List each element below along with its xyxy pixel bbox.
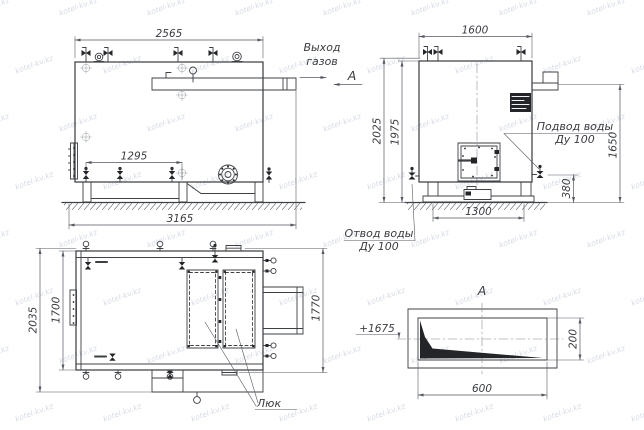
dim-text: 2035 <box>28 306 40 333</box>
support-legs-side <box>83 182 263 202</box>
flange-icon <box>232 52 242 61</box>
pump-flange-icon <box>219 165 238 184</box>
dim-380: 380 <box>548 175 578 203</box>
dim-text: 1770 <box>311 294 323 321</box>
bottom-drain-valves <box>83 167 272 183</box>
deposit-profile <box>420 321 543 359</box>
flue-duct-plan <box>263 287 303 334</box>
hinge-icon <box>495 150 500 154</box>
center-mark-icon <box>177 90 188 101</box>
dim-text: 1650 <box>608 131 620 158</box>
ash-door <box>464 187 491 200</box>
technical-drawing: 2565 <box>0 0 644 430</box>
water-outlet-label: Отвод воды <box>345 227 414 240</box>
hatch-callout: Люк <box>205 322 297 410</box>
drain-valve-icon <box>83 167 89 182</box>
section-a-view: А 200 600 +1675 <box>356 283 584 399</box>
bolt-icon <box>219 340 222 343</box>
dim-text: 3165 <box>167 213 194 225</box>
drain-valve-icon <box>266 167 272 182</box>
water-inlet-label: Подвод воды <box>537 120 614 133</box>
water-outlet-valve-icon <box>409 167 420 180</box>
water-inlet-callout: Подвод воды Ду 100 <box>504 120 614 169</box>
dim-text: 2025 <box>372 117 384 144</box>
ground-hatching <box>64 203 302 210</box>
gas-outlet-label: газов <box>306 55 338 68</box>
ground-line <box>62 203 305 211</box>
plan-right-fittings <box>263 258 276 359</box>
dim-1975: 1975 <box>390 61 420 203</box>
pipe-fitting-icon <box>166 73 171 79</box>
hatch-cover <box>223 270 255 348</box>
bolt-icon <box>219 298 222 301</box>
drain-valve-icon <box>169 167 175 182</box>
bolt-icon <box>219 276 222 279</box>
boiler-body-plan <box>76 251 263 370</box>
flue-duct-side <box>152 67 296 90</box>
top-safety-valves <box>82 48 243 63</box>
safety-valve-icon <box>104 48 113 63</box>
hatch-label: Люк <box>256 397 282 410</box>
dim-text: 2565 <box>156 28 183 40</box>
front-view: 1600 <box>344 25 624 254</box>
burner-flange <box>69 143 78 179</box>
dim-text: 1600 <box>462 25 489 37</box>
boiler-body-front <box>419 61 532 182</box>
level-mark-label: +1675 <box>359 323 395 335</box>
water-inlet-valve-icon <box>532 165 544 178</box>
gas-outlet-label: Выход <box>303 41 340 54</box>
dim-text: 1300 <box>465 206 492 218</box>
flange-icon <box>94 53 104 61</box>
safety-valve-icon <box>423 47 432 62</box>
dim-text: 1295 <box>121 151 148 163</box>
dim-1295: 1295 <box>86 151 182 181</box>
level-mark-callout: +1675 <box>356 323 399 338</box>
water-outlet-callout: Отвод воды Ду 100 <box>344 184 415 253</box>
plan-inner-fittings <box>85 244 218 361</box>
dim-text: 1700 <box>51 296 63 323</box>
dim-1770: 1770 <box>239 249 327 373</box>
front-extension-plan <box>152 370 263 403</box>
furnace-door <box>458 143 500 181</box>
plan-top-fittings <box>83 241 241 251</box>
side-view: 2565 <box>62 28 362 229</box>
plan-view: Люк 2035 1700 1770 <box>28 241 328 410</box>
dim-text: 600 <box>472 383 492 395</box>
dim-1700: 1700 <box>51 251 77 370</box>
boiler-body-side <box>75 62 263 182</box>
water-outlet-label: Ду 100 <box>358 240 399 253</box>
safety-valve-icon <box>434 47 443 62</box>
center-mark-icon <box>81 132 92 143</box>
nameplate <box>510 93 531 112</box>
section-mark-label: А <box>347 68 357 83</box>
bolt-icon <box>219 320 222 323</box>
center-mark-icon <box>177 63 188 74</box>
center-mark-icon <box>81 63 92 74</box>
section-title: А <box>477 283 487 298</box>
safety-valve-icon <box>82 48 91 63</box>
safety-valve-icon <box>517 47 526 62</box>
thermometer-icon <box>190 67 197 82</box>
gas-outlet-callout: Выход газов А <box>300 41 362 85</box>
chimney-stub <box>532 72 558 90</box>
dim-text: 200 <box>568 329 580 349</box>
pipe-end-icon <box>194 397 201 404</box>
safety-valve-icon <box>209 48 218 63</box>
hinge-icon <box>495 167 500 171</box>
drawing-sheet: kotel-kv.kzkotel-kv.kzkotel-kv.kzkotel-k… <box>0 0 644 430</box>
dim-text: 1975 <box>390 118 402 145</box>
drain-valve-icon <box>117 167 123 182</box>
dim-text: 380 <box>561 178 573 198</box>
water-inlet-label: Ду 100 <box>554 133 595 146</box>
dim-2565: 2565 <box>75 28 263 58</box>
safety-valve-icon <box>174 48 183 63</box>
